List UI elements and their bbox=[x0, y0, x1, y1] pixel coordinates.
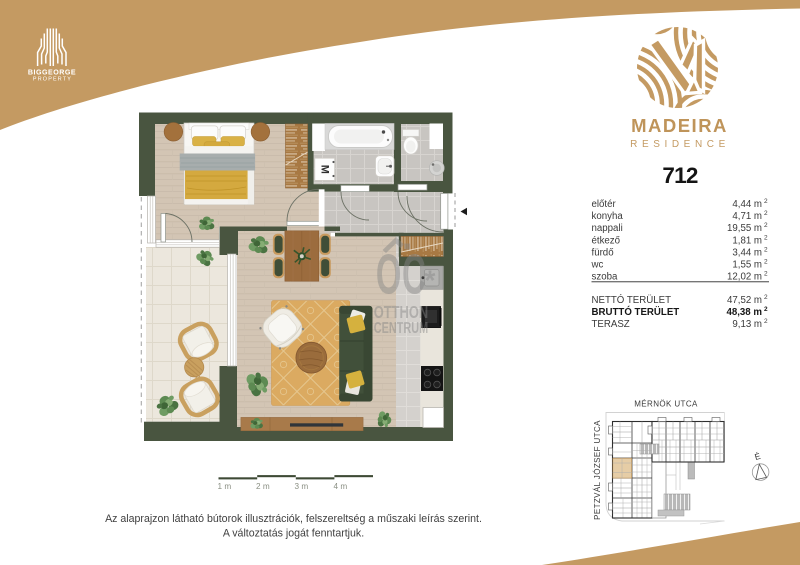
svg-text:3,44 m: 3,44 m bbox=[732, 247, 762, 258]
svg-text:2: 2 bbox=[764, 246, 768, 253]
svg-text:PETZVÁL JÓZSEF UTCA: PETZVÁL JÓZSEF UTCA bbox=[593, 420, 602, 520]
svg-text:*: * bbox=[425, 265, 436, 296]
svg-text:A változtatás jogát fenntartju: A változtatás jogát fenntartjuk. bbox=[223, 528, 364, 540]
svg-text:wc: wc bbox=[591, 260, 604, 271]
svg-text:47,52 m: 47,52 m bbox=[727, 295, 762, 306]
svg-text:2: 2 bbox=[764, 259, 768, 266]
svg-text:OC: OC bbox=[376, 242, 426, 306]
svg-text:PROPERTY: PROPERTY bbox=[33, 77, 72, 83]
svg-text:NETTÓ TERÜLET: NETTÓ TERÜLET bbox=[592, 295, 672, 306]
svg-text:19,55 m: 19,55 m bbox=[727, 223, 762, 234]
svg-text:TERASZ: TERASZ bbox=[592, 319, 630, 330]
svg-text:3 m: 3 m bbox=[295, 482, 309, 491]
svg-text:48,38 m: 48,38 m bbox=[726, 307, 762, 318]
svg-text:2: 2 bbox=[764, 210, 768, 217]
svg-text:RESIDENCE: RESIDENCE bbox=[630, 139, 730, 150]
svg-text:12,02 m: 12,02 m bbox=[727, 272, 762, 283]
svg-text:2: 2 bbox=[764, 198, 768, 205]
svg-text:1,81 m: 1,81 m bbox=[732, 235, 762, 246]
svg-text:szoba: szoba bbox=[592, 272, 618, 283]
svg-text:712: 712 bbox=[662, 163, 697, 188]
svg-text:MÉRNÖK UTCA: MÉRNÖK UTCA bbox=[634, 400, 698, 409]
svg-text:2: 2 bbox=[764, 271, 768, 278]
svg-text:étkező: étkező bbox=[592, 235, 621, 246]
svg-text:4,44 m: 4,44 m bbox=[732, 199, 762, 210]
svg-text:előtér: előtér bbox=[592, 199, 617, 210]
svg-text:fürdő: fürdő bbox=[592, 247, 614, 258]
svg-text:2: 2 bbox=[764, 306, 768, 313]
svg-text:2 m: 2 m bbox=[256, 482, 270, 491]
svg-text:2: 2 bbox=[764, 234, 768, 241]
svg-text:M: M bbox=[319, 165, 331, 174]
svg-text:CENTRUM: CENTRUM bbox=[374, 319, 428, 337]
svg-text:2: 2 bbox=[764, 294, 768, 301]
svg-text:2: 2 bbox=[764, 318, 768, 325]
svg-text:4 m: 4 m bbox=[334, 482, 348, 491]
svg-text:BIGGEORGE: BIGGEORGE bbox=[28, 69, 76, 77]
svg-text:nappali: nappali bbox=[592, 223, 623, 234]
svg-text:2: 2 bbox=[764, 222, 768, 229]
svg-text:4,71 m: 4,71 m bbox=[732, 211, 762, 222]
svg-text:Az alaprajzon látható bútorok: Az alaprajzon látható bútorok illusztrác… bbox=[105, 513, 482, 525]
svg-text:MADEIRA: MADEIRA bbox=[631, 115, 728, 136]
svg-text:BRUTTÓ TERÜLET: BRUTTÓ TERÜLET bbox=[592, 306, 680, 318]
svg-text:1,55 m: 1,55 m bbox=[732, 260, 762, 271]
svg-text:1 m: 1 m bbox=[218, 482, 232, 491]
svg-text:9,13 m: 9,13 m bbox=[732, 319, 762, 330]
svg-text:konyha: konyha bbox=[592, 211, 624, 222]
